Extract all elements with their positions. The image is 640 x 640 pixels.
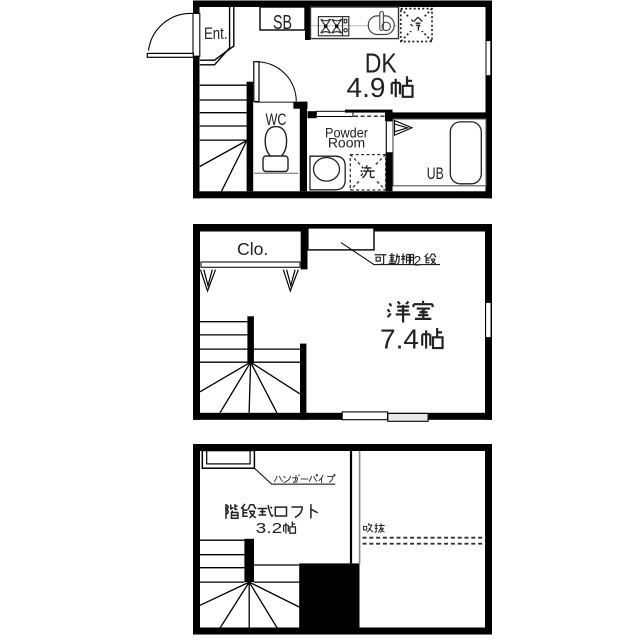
svg-text:Clo.: Clo. — [237, 239, 268, 259]
svg-text:Room: Room — [328, 135, 365, 151]
svg-text:2: 2 — [414, 252, 422, 268]
svg-text:4.9: 4.9 — [347, 72, 386, 103]
svg-text:3.2: 3.2 — [256, 521, 283, 537]
svg-text:Ent.: Ent. — [204, 25, 228, 43]
svg-text:UB: UB — [427, 165, 444, 183]
svg-text:SB: SB — [273, 11, 292, 34]
svg-text:7.4: 7.4 — [380, 323, 419, 354]
